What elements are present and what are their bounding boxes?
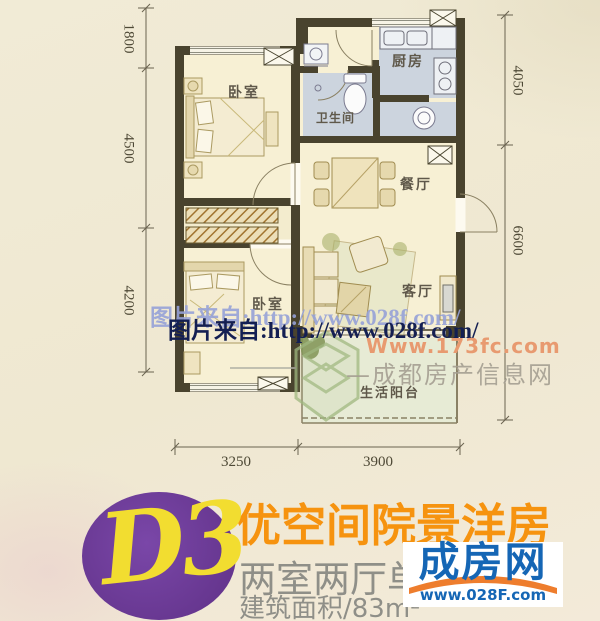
dim-label-left-4200: 4200: [120, 286, 137, 316]
chengfang-logo: 成房网 www.028F.com: [403, 542, 563, 607]
room-label-bathroom: 卫生间: [316, 109, 355, 126]
unit-code-text: D3: [94, 477, 251, 612]
watermark-site-name: —成都房产信息网: [346, 355, 554, 390]
logo-name-text: 成房网: [411, 538, 555, 586]
watermark-site-url: Www.173fc.com: [366, 334, 561, 358]
screenshot-root: 卧室 厨房 卫生间 餐厅 客厅 卧室 生活阳台 1800 4500 4200 4…: [0, 0, 600, 621]
logo-url-text: www.028F.com: [403, 586, 563, 604]
room-label-kitchen: 厨房: [392, 51, 424, 71]
room-label-dining: 餐厅: [400, 174, 432, 194]
room-label-bedroom-1: 卧室: [228, 82, 260, 102]
dim-label-right-6600: 6600: [509, 226, 526, 256]
dim-label-left-1800: 1800: [120, 24, 137, 54]
dim-label-right-4050: 4050: [509, 66, 526, 96]
dim-label-bottom-3250: 3250: [221, 454, 251, 471]
dim-label-bottom-3900: 3900: [363, 454, 393, 471]
plan-area-text: 建筑面积/83m²: [239, 588, 421, 621]
dim-label-left-4500: 4500: [120, 134, 137, 164]
